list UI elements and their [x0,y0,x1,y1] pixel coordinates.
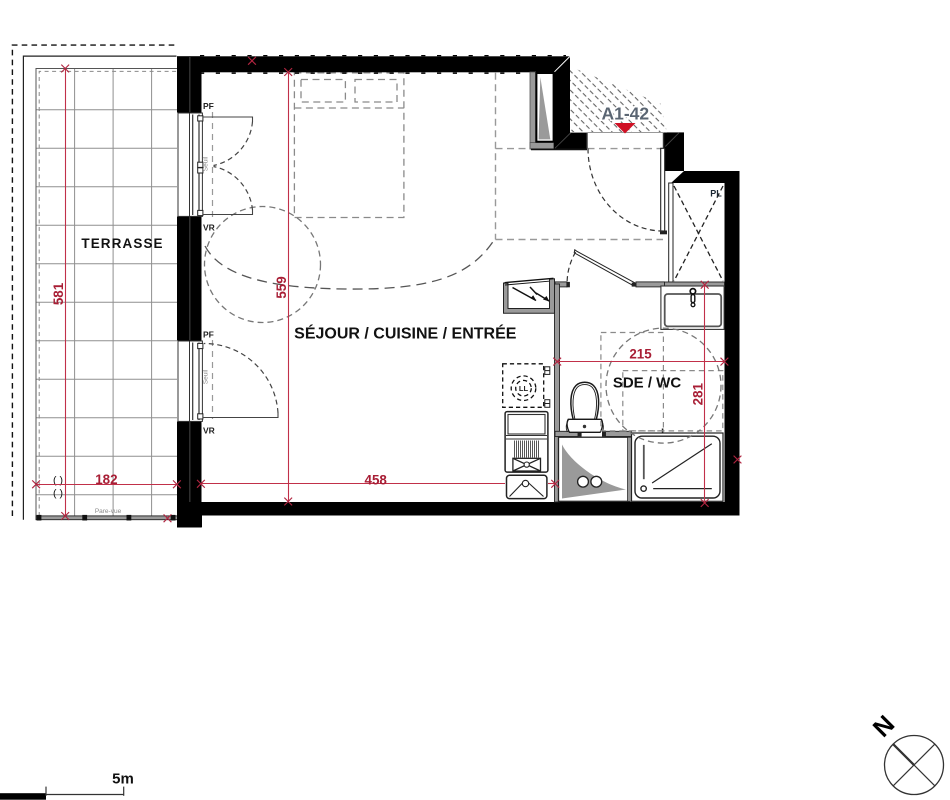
svg-text:TERRASSE: TERRASSE [81,236,163,251]
svg-text:559: 559 [274,276,289,298]
svg-text:458: 458 [365,472,388,487]
svg-text:Seuil: Seuil [203,156,210,171]
svg-text:( ): ( ) [53,488,63,500]
svg-text:215: 215 [629,347,652,362]
svg-text:Pare-vue: Pare-vue [95,508,122,515]
svg-text:PL: PL [710,189,722,199]
svg-text:PF: PF [203,101,214,111]
svg-text:182: 182 [95,472,117,487]
svg-text:SÉJOUR / CUISINE / ENTRÉE: SÉJOUR / CUISINE / ENTRÉE [294,324,517,343]
svg-text:SDE / WC: SDE / WC [613,375,682,392]
svg-text:VR: VR [203,426,215,436]
svg-text:5m: 5m [112,771,134,788]
svg-text:PF: PF [203,330,214,340]
svg-text:VR: VR [203,223,215,233]
svg-text:281: 281 [691,382,706,405]
svg-text:A1-42: A1-42 [601,103,649,123]
svg-text:581: 581 [51,282,66,305]
svg-text:Seuil: Seuil [203,369,210,384]
svg-text:LL: LL [519,384,529,393]
